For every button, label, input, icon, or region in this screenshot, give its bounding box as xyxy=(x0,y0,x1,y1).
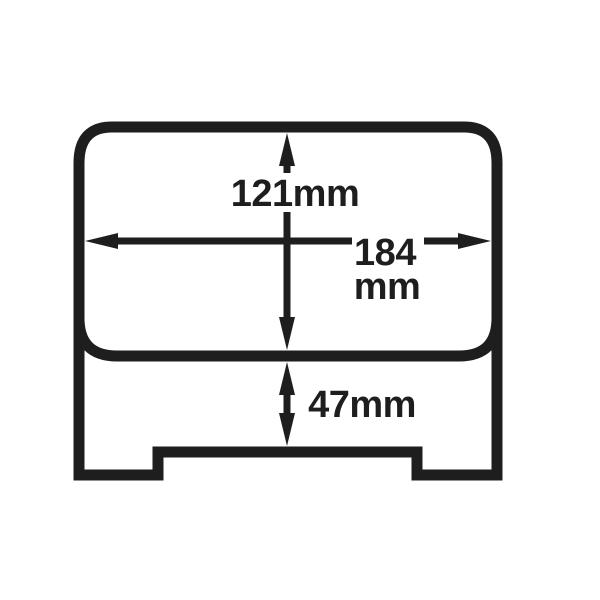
dim-base-height xyxy=(279,362,295,446)
dim-label-width-unit: mm xyxy=(354,266,421,308)
dim-label-base-height: 47mm xyxy=(308,384,416,426)
right-arrowhead xyxy=(458,233,491,249)
left-arrowhead xyxy=(85,233,118,249)
dim-label-body-height: 121mm xyxy=(231,173,359,215)
dimension-labels: 121mm 184 mm 47mm xyxy=(231,173,421,426)
dimension-diagram: 121mm 184 mm 47mm xyxy=(0,0,600,600)
down-arrowhead xyxy=(279,413,295,446)
diagram-canvas: 121mm 184 mm 47mm xyxy=(0,0,600,600)
down-arrowhead xyxy=(279,317,295,350)
up-arrowhead xyxy=(279,133,295,166)
